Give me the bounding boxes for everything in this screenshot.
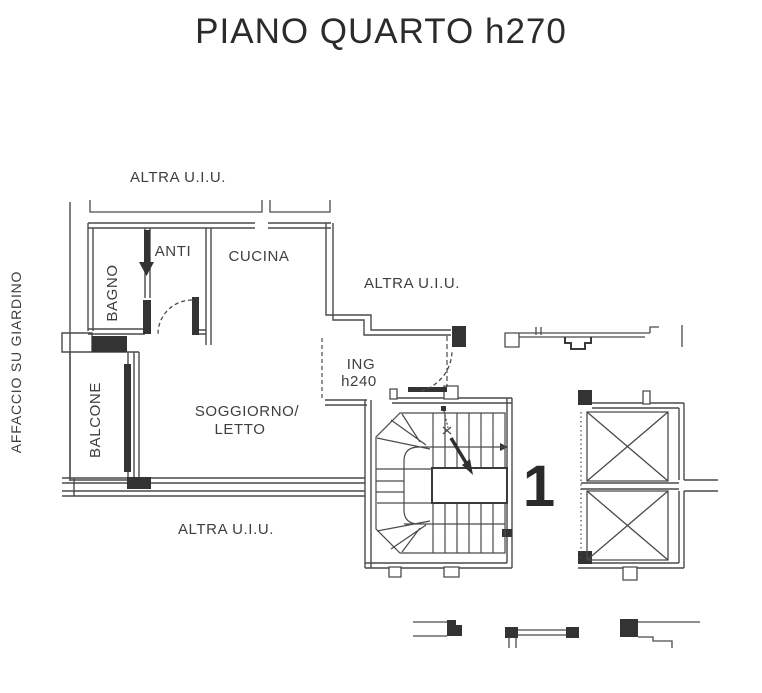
stair-direction-arrow [451,438,468,466]
label-bagno: BAGNO [104,264,121,321]
page-title: PIANO QUARTO h270 [195,12,567,51]
label-altra-uiu-bottom: ALTRA U.I.U. [178,521,274,538]
fragment-upper-right [505,325,682,347]
unit-number: 1 [523,454,555,519]
label-ing: ING [347,356,375,373]
label-soggiorno-line2: LETTO [214,421,265,438]
label-ing-height: h240 [341,373,377,390]
label-balcone: BALCONE [87,382,104,458]
label-cucina: CUCINA [228,248,289,265]
bagno-door-arc [158,300,192,334]
label-affaccio-su-giardino: AFFACCIO SU GIARDINO [8,271,24,453]
floorplan-drawing: PIANO QUARTO h270 [0,0,762,693]
stair-landing [432,468,507,503]
door-swings [158,300,452,398]
elevator-shafts [581,412,668,560]
floorplan-page: PIANO QUARTO h270 [0,0,762,693]
elevator-shaft-crosses [587,412,668,560]
fragment-upper-right-recess [565,337,591,349]
label-altra-uiu-right: ALTRA U.I.U. [364,275,460,292]
stairwell [376,411,507,553]
label-altra-uiu-top: ALTRA U.I.U. [130,169,226,186]
label-anti: ANTI [155,243,192,260]
label-soggiorno-line1: SOGGIORNO/ [195,403,300,420]
party-wall-staples [90,200,330,212]
